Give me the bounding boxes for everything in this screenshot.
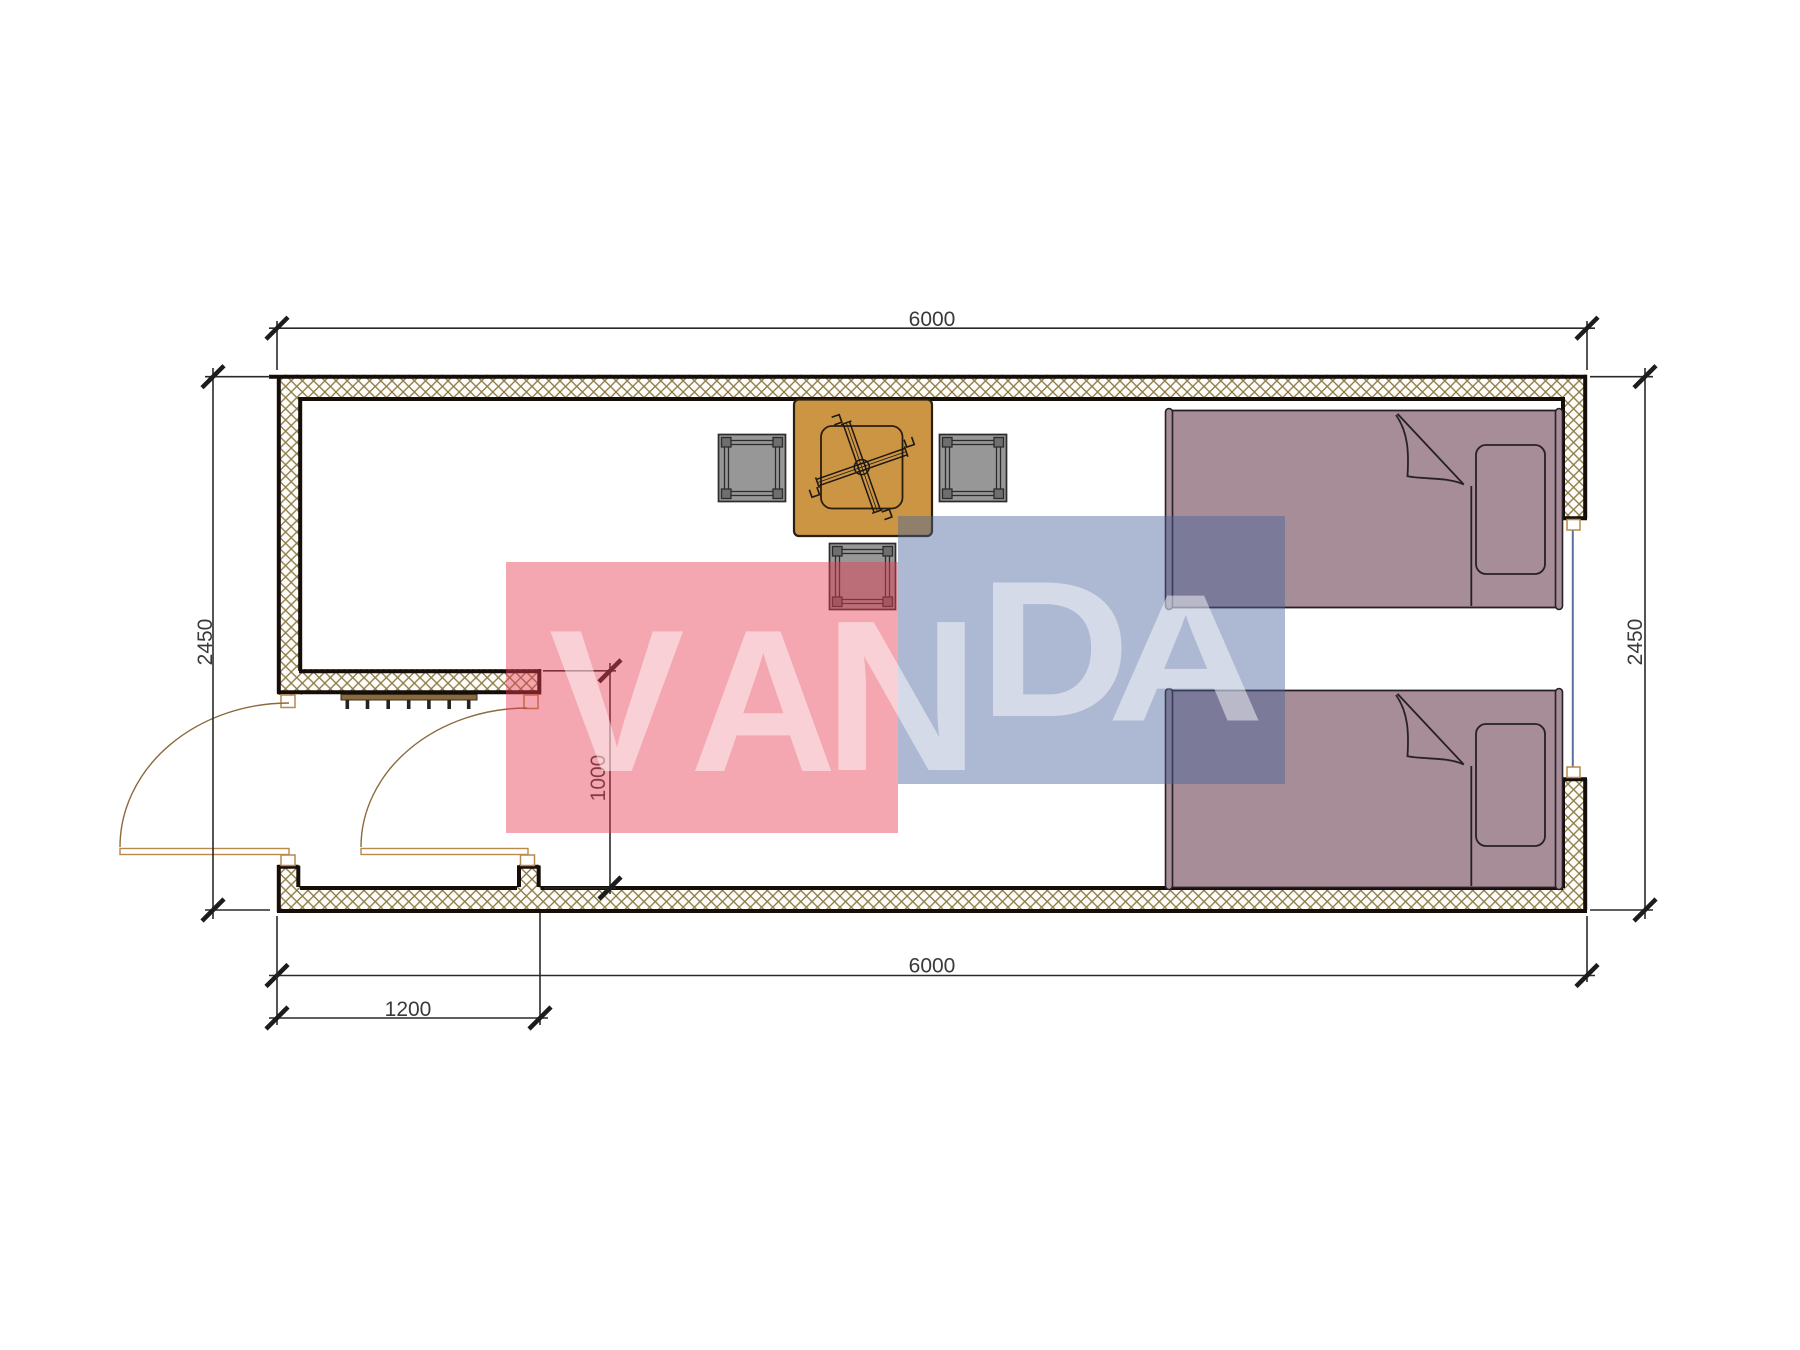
svg-text:V: V	[549, 588, 684, 815]
svg-text:2450: 2450	[194, 619, 217, 666]
svg-text:6000: 6000	[909, 955, 956, 978]
svg-text:N: N	[824, 575, 979, 816]
svg-text:2450: 2450	[1624, 619, 1647, 666]
svg-text:6000: 6000	[909, 308, 956, 331]
svg-text:A: A	[1107, 558, 1264, 760]
svg-text:A: A	[690, 588, 837, 815]
svg-text:1200: 1200	[385, 998, 432, 1021]
